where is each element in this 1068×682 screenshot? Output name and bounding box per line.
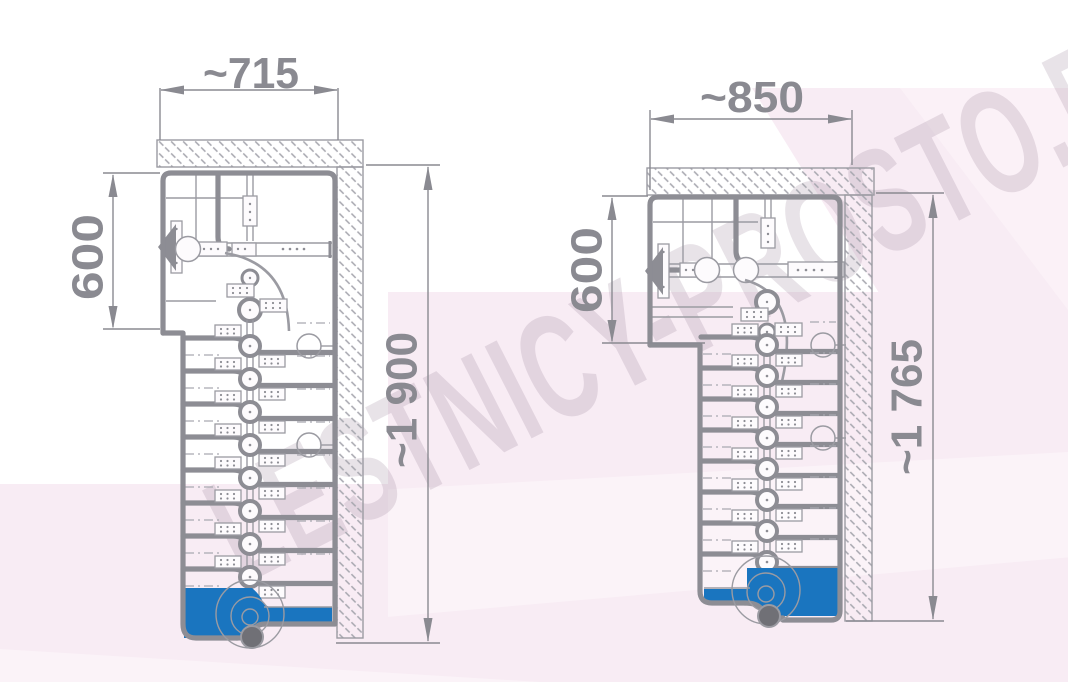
depth-dimension: 600 <box>64 173 160 329</box>
width-dimension: ~715 <box>160 49 338 140</box>
right-depth-label: 600 <box>563 227 612 313</box>
right-stair-plan: ~850 600 ~1 765 <box>563 73 944 627</box>
left-depth-label: 600 <box>64 214 113 300</box>
stair-plans-svg: ~715 600 ~1 900 <box>0 0 1068 682</box>
treads <box>183 320 333 598</box>
left-height-label: ~1 900 <box>378 332 427 468</box>
right-height-label: ~1 765 <box>883 339 932 475</box>
right-width-label: ~850 <box>700 73 804 122</box>
left-stair-plan: ~715 600 ~1 900 <box>64 49 440 648</box>
treads <box>701 322 838 583</box>
newel-pole <box>758 605 780 627</box>
landing-details <box>158 174 332 331</box>
left-width-label: ~715 <box>203 49 299 98</box>
drawing-canvas: LESTNICY-PROSTO.RU <box>0 0 1068 682</box>
newel-pole <box>241 626 263 648</box>
